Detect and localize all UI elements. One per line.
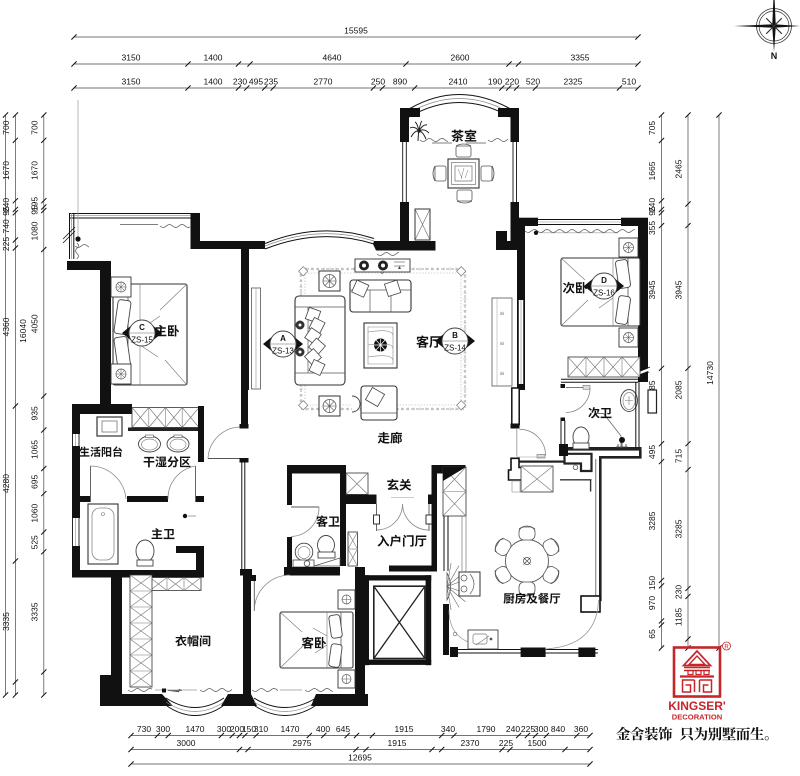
svg-text:340: 340: [441, 724, 455, 734]
svg-text:740: 740: [1, 219, 11, 233]
svg-text:1080: 1080: [30, 221, 40, 240]
svg-text:4640: 4640: [323, 53, 342, 63]
svg-text:360: 360: [574, 724, 588, 734]
svg-text:150: 150: [647, 576, 657, 590]
svg-text:3335: 3335: [1, 612, 11, 631]
svg-text:495: 495: [249, 77, 263, 87]
svg-text:᎒᎒᎒: ᎒᎒᎒: [500, 311, 503, 317]
svg-text:1065: 1065: [30, 440, 40, 459]
svg-text:C: C: [139, 323, 145, 332]
svg-text:2085: 2085: [674, 380, 684, 399]
svg-text:ZS-13: ZS-13: [272, 347, 294, 356]
svg-text:DECORATION: DECORATION: [672, 713, 722, 722]
svg-text:2370: 2370: [461, 738, 480, 748]
svg-text:᎒᎒᎒: ᎒᎒᎒: [500, 341, 503, 347]
svg-text:520: 520: [526, 77, 540, 87]
svg-text:2770: 2770: [314, 77, 333, 87]
svg-text:1470: 1470: [186, 724, 205, 734]
svg-text:840: 840: [551, 724, 565, 734]
svg-text:300: 300: [534, 724, 548, 734]
svg-text:1400: 1400: [204, 53, 223, 63]
svg-text:1060: 1060: [30, 503, 40, 522]
svg-text:3150: 3150: [122, 77, 141, 87]
svg-text:ZS-14: ZS-14: [444, 344, 466, 353]
svg-text:730: 730: [137, 724, 151, 734]
svg-text:2410: 2410: [449, 77, 468, 87]
svg-text:4360: 4360: [1, 317, 11, 336]
svg-text:1665: 1665: [647, 161, 657, 180]
svg-text:65: 65: [647, 629, 657, 639]
svg-text:2600: 2600: [451, 53, 470, 63]
svg-text:B: B: [452, 331, 458, 340]
svg-text:3945: 3945: [647, 280, 657, 299]
svg-text:400: 400: [316, 724, 330, 734]
svg-text:705: 705: [647, 121, 657, 135]
svg-text:700: 700: [30, 120, 40, 134]
svg-text:225: 225: [1, 237, 11, 251]
svg-text:4280: 4280: [1, 474, 11, 493]
svg-text:12695: 12695: [348, 753, 372, 763]
svg-text:D: D: [601, 276, 607, 285]
svg-text:ZS-16: ZS-16: [593, 289, 615, 298]
svg-text:220: 220: [505, 77, 519, 87]
svg-text:300: 300: [156, 724, 170, 734]
svg-text:645: 645: [336, 724, 350, 734]
svg-text:700: 700: [1, 120, 11, 134]
svg-text:᎒᎒᎒: ᎒᎒᎒: [500, 371, 503, 377]
svg-text:3335: 3335: [30, 602, 40, 621]
svg-text:95: 95: [1, 206, 11, 216]
svg-text:1915: 1915: [395, 724, 414, 734]
svg-text:3285: 3285: [647, 511, 657, 530]
svg-text:N: N: [771, 51, 778, 61]
svg-text:2325: 2325: [564, 77, 583, 87]
svg-text:510: 510: [622, 77, 636, 87]
svg-text:15595: 15595: [344, 26, 368, 36]
svg-text:1185: 1185: [674, 608, 684, 627]
svg-text:1500: 1500: [528, 738, 547, 748]
svg-text:970: 970: [647, 596, 657, 610]
svg-text:4050: 4050: [30, 314, 40, 333]
svg-text:715: 715: [674, 449, 684, 463]
svg-text:1470: 1470: [281, 724, 300, 734]
svg-text:935: 935: [30, 406, 40, 420]
svg-text:3150: 3150: [122, 53, 141, 63]
svg-text:95: 95: [30, 205, 40, 215]
svg-text:235: 235: [264, 77, 278, 87]
svg-text:190: 190: [488, 77, 502, 87]
svg-text:ZS-15: ZS-15: [131, 336, 153, 345]
svg-text:1670: 1670: [30, 161, 40, 180]
svg-text:95: 95: [647, 206, 657, 216]
svg-text:310: 310: [254, 724, 268, 734]
svg-text:1400: 1400: [204, 77, 223, 87]
svg-text:A: A: [280, 334, 286, 343]
svg-text:R: R: [724, 645, 729, 651]
svg-text:695: 695: [30, 475, 40, 489]
svg-text:525: 525: [30, 535, 40, 549]
svg-text:KINGSER': KINGSER': [668, 699, 726, 713]
svg-text:250: 250: [371, 77, 385, 87]
svg-text:1670: 1670: [1, 161, 11, 180]
svg-text:3285: 3285: [674, 519, 684, 538]
svg-text:3000: 3000: [177, 738, 196, 748]
svg-text:230: 230: [674, 585, 684, 599]
svg-text:3355: 3355: [571, 53, 590, 63]
svg-text:14730: 14730: [705, 361, 715, 385]
svg-text:16040: 16040: [18, 319, 28, 343]
svg-text:230: 230: [233, 77, 247, 87]
svg-text:240: 240: [506, 724, 520, 734]
svg-text:890: 890: [393, 77, 407, 87]
svg-text:495: 495: [647, 445, 657, 459]
svg-text:225: 225: [499, 738, 513, 748]
svg-text:1915: 1915: [388, 738, 407, 748]
svg-text:355: 355: [647, 221, 657, 235]
svg-text:1790: 1790: [477, 724, 496, 734]
svg-text:2465: 2465: [674, 159, 684, 178]
svg-text:3945: 3945: [674, 280, 684, 299]
svg-text:2975: 2975: [293, 738, 312, 748]
